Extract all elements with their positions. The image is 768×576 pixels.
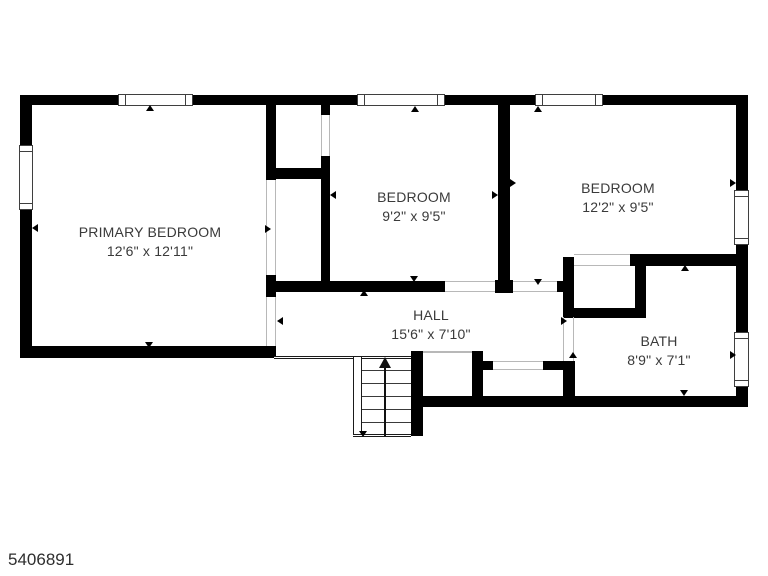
door-opening-line <box>574 254 630 266</box>
room-label-primary-bedroom: PRIMARY BEDROOM 12'6" x 12'11" <box>79 223 222 261</box>
window <box>535 94 603 106</box>
room-label-bath: BATH 8'9" x 7'1" <box>627 332 690 370</box>
opening-marker-icon <box>330 191 336 199</box>
window <box>357 94 445 106</box>
wall-segment <box>563 308 646 318</box>
wall-segment <box>20 210 32 358</box>
window <box>19 145 33 210</box>
opening-marker-icon <box>730 351 736 359</box>
opening-marker-icon <box>569 352 577 358</box>
room-dimensions: 15'6" x 7'10" <box>391 325 470 344</box>
wall-segment <box>736 105 748 190</box>
room-name: BATH <box>627 332 690 351</box>
opening-marker-icon <box>730 179 736 187</box>
opening-marker-icon <box>265 225 271 233</box>
listing-id: 5406891 <box>8 550 74 570</box>
wall-segment <box>563 361 575 396</box>
window <box>734 332 749 387</box>
opening-marker-icon <box>534 279 542 285</box>
wall-segment <box>498 105 510 281</box>
wall-segment <box>276 168 325 179</box>
stair-tread <box>362 409 411 410</box>
wall-segment <box>736 245 748 332</box>
opening-marker-icon <box>411 106 419 112</box>
opening-marker-icon <box>360 290 368 296</box>
wall-segment <box>321 156 330 292</box>
wall-segment <box>557 281 563 292</box>
room-label-hall: HALL 15'6" x 7'10" <box>391 306 470 344</box>
room-dimensions: 12'6" x 12'11" <box>79 242 222 261</box>
wall-segment <box>635 254 646 318</box>
door-opening-line <box>321 115 330 156</box>
opening-marker-icon <box>681 265 689 271</box>
room-name: HALL <box>391 306 470 325</box>
opening-marker-icon <box>277 317 283 325</box>
room-name: PRIMARY BEDROOM <box>79 223 222 242</box>
room-dimensions: 8'9" x 7'1" <box>627 351 690 370</box>
room-name: BEDROOM <box>581 179 655 198</box>
opening-marker-icon <box>680 390 688 396</box>
door-opening-line <box>445 281 495 292</box>
opening-marker-icon <box>359 431 367 437</box>
wall-segment <box>411 351 423 436</box>
wall-segment <box>193 95 357 105</box>
room-label-bedroom-right: BEDROOM 12'2" x 9'5" <box>581 179 655 217</box>
stairs-direction-arrow <box>384 366 386 436</box>
stair-tread <box>362 383 411 384</box>
wall-segment <box>543 361 563 370</box>
stairs-up-arrowhead-icon <box>379 357 391 368</box>
wall-segment <box>266 275 276 297</box>
opening-marker-icon <box>492 191 498 199</box>
wall-segment <box>603 95 748 105</box>
room-dimensions: 9'2" x 9'5" <box>377 207 451 226</box>
wall-segment <box>483 361 493 370</box>
wall-segment <box>20 105 32 145</box>
stair-edge-line <box>353 357 362 437</box>
floor-plan: PRIMARY BEDROOM 12'6" x 12'11" BEDROOM 9… <box>0 0 768 576</box>
opening-marker-icon <box>561 317 567 325</box>
door-opening-line <box>423 351 472 353</box>
door-opening-line <box>266 297 276 346</box>
room-name: BEDROOM <box>377 188 451 207</box>
stair-tread <box>362 396 411 397</box>
stair-tread <box>362 370 411 371</box>
opening-marker-icon <box>32 224 38 232</box>
wall-segment <box>20 95 118 105</box>
opening-marker-icon <box>146 105 154 111</box>
stair-tread <box>362 422 411 423</box>
opening-marker-icon <box>145 342 153 348</box>
opening-marker-icon <box>410 276 418 282</box>
wall-segment <box>266 105 276 180</box>
door-opening-line <box>493 361 543 370</box>
wall-segment <box>321 105 330 115</box>
opening-marker-icon <box>534 106 542 112</box>
wall-segment <box>445 95 535 105</box>
opening-marker-icon <box>510 179 516 187</box>
staircase <box>362 357 411 437</box>
wall-segment <box>472 351 483 396</box>
wall-segment <box>412 396 748 407</box>
room-label-bedroom-middle: BEDROOM 9'2" x 9'5" <box>377 188 451 226</box>
window <box>734 190 749 245</box>
wall-segment <box>495 280 513 293</box>
window <box>118 94 193 106</box>
room-dimensions: 12'2" x 9'5" <box>581 198 655 217</box>
